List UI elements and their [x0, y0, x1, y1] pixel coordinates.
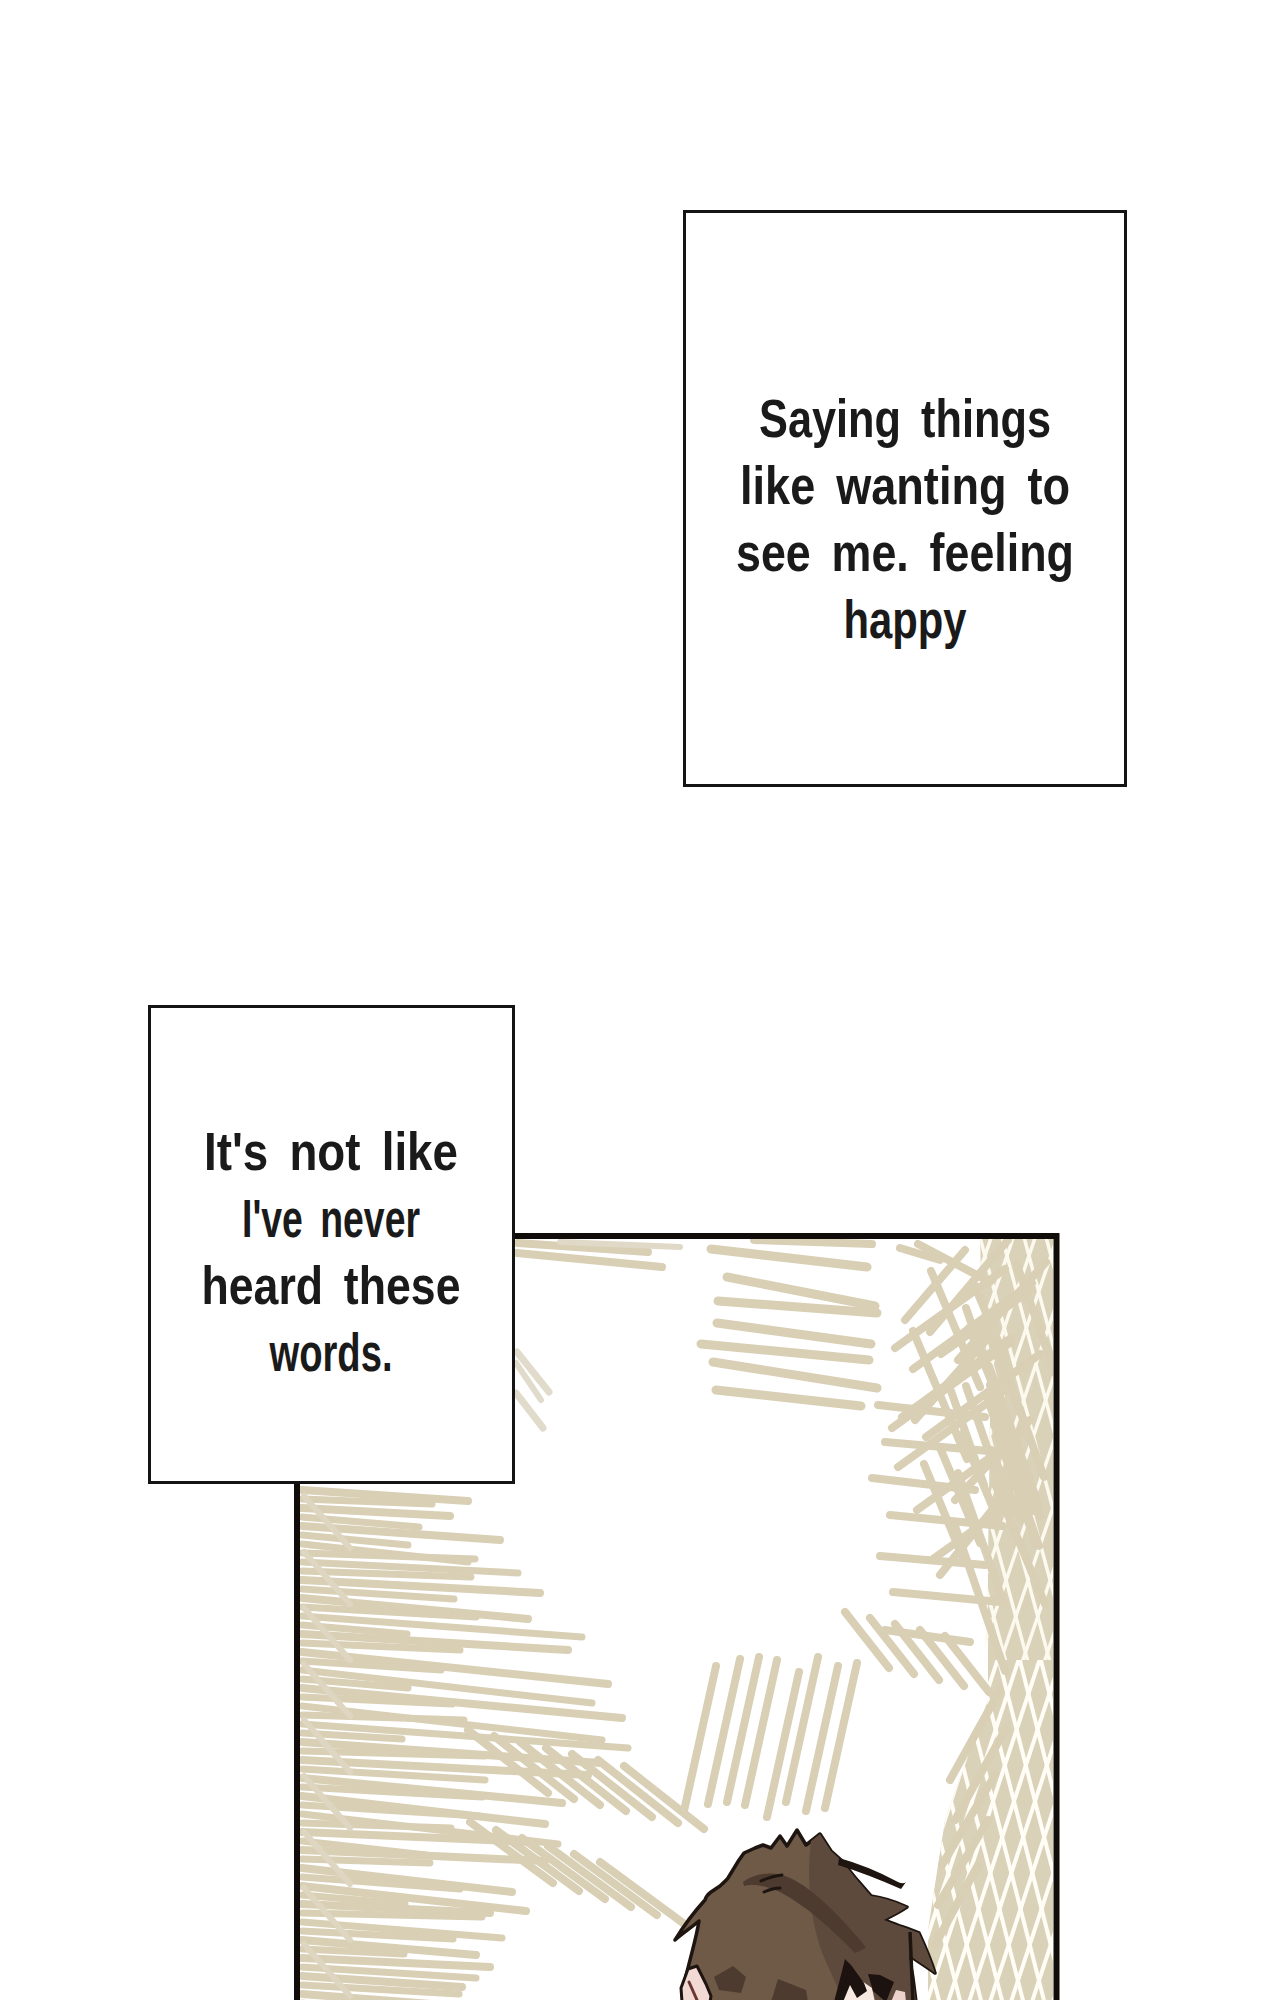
svg-text:happy: happy — [844, 589, 967, 649]
svg-text:see me. feeling: see me. feeling — [736, 522, 1074, 582]
svg-text:Saying things: Saying things — [759, 388, 1051, 448]
svg-text:words.: words. — [269, 1322, 393, 1382]
svg-text:heard these: heard these — [202, 1255, 461, 1315]
svg-text:I've never: I've never — [242, 1188, 420, 1248]
svg-text:like wanting to: like wanting to — [740, 455, 1070, 515]
svg-text:It's not like: It's not like — [204, 1121, 458, 1181]
